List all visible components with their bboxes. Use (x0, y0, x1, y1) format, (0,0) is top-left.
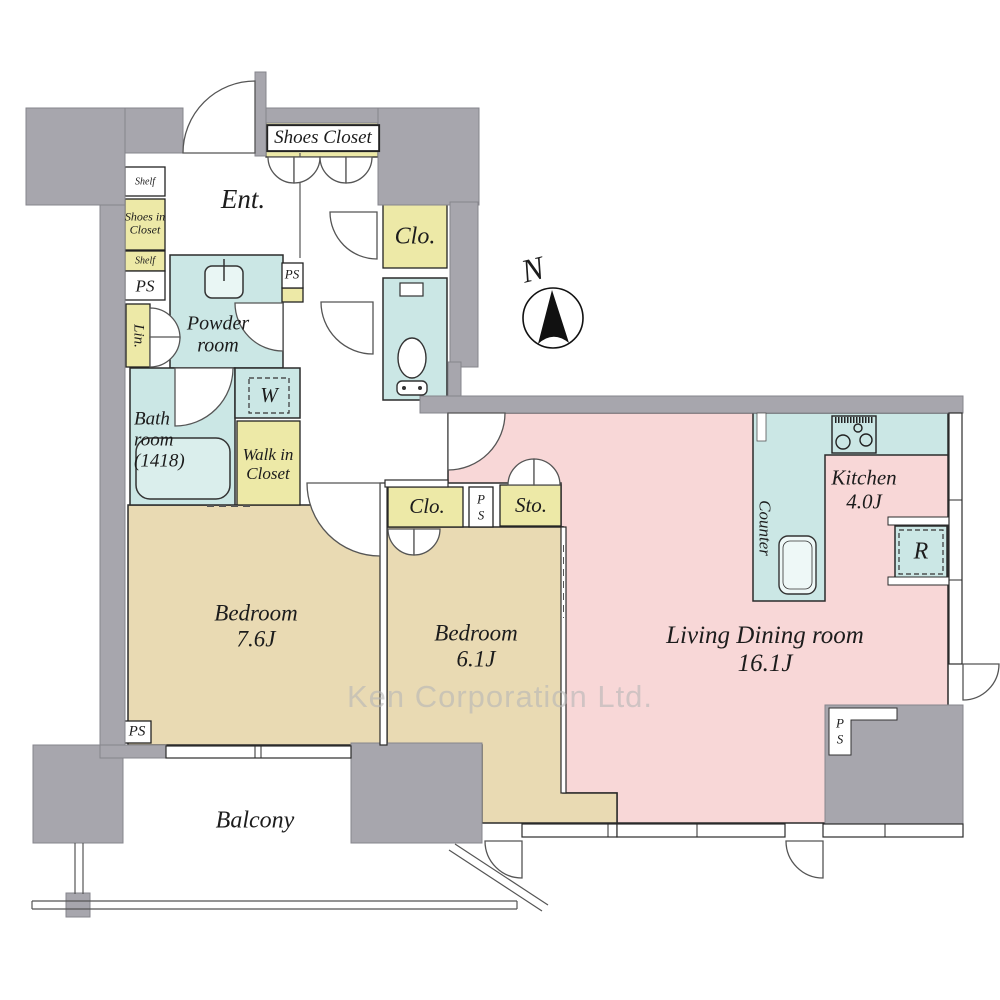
door-arc-entrance (183, 81, 255, 153)
shoes-closet-scallop (346, 157, 372, 183)
bathroom-label: Bathroom(1418) (134, 410, 185, 473)
ps-living-label: PS (836, 715, 844, 746)
washer-label: W (260, 384, 278, 408)
ps-entrance-label: PS (136, 276, 155, 295)
wall-above-closets (385, 480, 448, 487)
kitchen-shelf-bar (888, 577, 951, 585)
wall-block (351, 743, 482, 843)
living-dining-label: Living Dining room16.1J (666, 622, 864, 678)
window-living-left (617, 824, 785, 837)
balcony-label: Balcony (216, 808, 295, 835)
window-bedroom-main (166, 746, 351, 758)
small-duct-box (282, 288, 303, 302)
wall-block (255, 72, 266, 156)
door-arc-toilet (321, 302, 373, 354)
entrance-label: Ent. (221, 184, 265, 214)
closet-hall-label: Clo. (395, 224, 436, 251)
linen-label: Lin. (130, 324, 147, 348)
counter-label: Counter (755, 500, 774, 556)
shelf-lower-label: Shelf (135, 255, 155, 266)
walk-in-closet-label: Walk inCloset (243, 445, 294, 483)
door-arc-living-side (963, 664, 999, 700)
refrigerator-label: R (914, 539, 929, 566)
wall-block (420, 396, 963, 413)
toilet-tank-icon (400, 283, 423, 296)
balcony-pillar (66, 893, 90, 917)
ps-bedroom-main-label: PS (129, 724, 146, 741)
kitchen-shelf-bar (888, 517, 951, 525)
wall-block (266, 108, 378, 123)
toilet-bowl-icon (398, 338, 426, 378)
floor-plan: Shoes Closet Shelf Ent. Shoes inCloset S… (0, 0, 1000, 1000)
shoes-closet-scallop (320, 157, 346, 183)
shelf-upper-label: Shelf (135, 176, 155, 187)
wall-block (100, 205, 125, 745)
wall-block (448, 362, 461, 398)
window-living-right (823, 824, 963, 837)
wall-block (378, 108, 479, 205)
shoes-closet-label: Shoes Closet (266, 124, 380, 152)
toilet-detail (418, 386, 422, 390)
sliding-partition (561, 527, 566, 793)
wall-block (26, 108, 125, 205)
shoes-closet-scallop (268, 157, 294, 183)
window-bedroom-second (522, 824, 617, 837)
kitchen-label: Kitchen4.0J (831, 466, 896, 513)
watermark: Ken Corporation Ltd. (347, 679, 653, 715)
ps-bedroom-label: PS (477, 491, 485, 522)
toilet-detail (402, 386, 406, 390)
kitchen-sink-icon (779, 536, 816, 594)
door-arc-hall-closet (330, 212, 377, 259)
bedroom-main-label: Bedroom7.6J (214, 600, 297, 652)
door-arc-balcony-bedroom (485, 841, 522, 878)
bedroom-second-label: Bedroom6.1J (434, 620, 517, 672)
wall-block (33, 745, 123, 843)
ps-powder-label: PS (285, 268, 299, 283)
wall-block (125, 108, 183, 153)
balcony-railing (32, 843, 548, 911)
powder-room-label: Powderroom (187, 313, 249, 358)
wall-block (100, 745, 166, 758)
shoes-in-closet-label: Shoes inCloset (125, 211, 165, 238)
closet-bedroom-label: Clo. (409, 495, 445, 519)
window-living-side (949, 413, 962, 664)
compass-icon (523, 288, 583, 348)
door-arc-balcony-living (786, 841, 823, 878)
counter-pass-gap (757, 413, 766, 441)
toilet-base-icon (397, 381, 427, 395)
storage-label: Sto. (515, 494, 547, 518)
wall-block (450, 202, 478, 367)
shoes-closet-scallop (294, 157, 320, 183)
